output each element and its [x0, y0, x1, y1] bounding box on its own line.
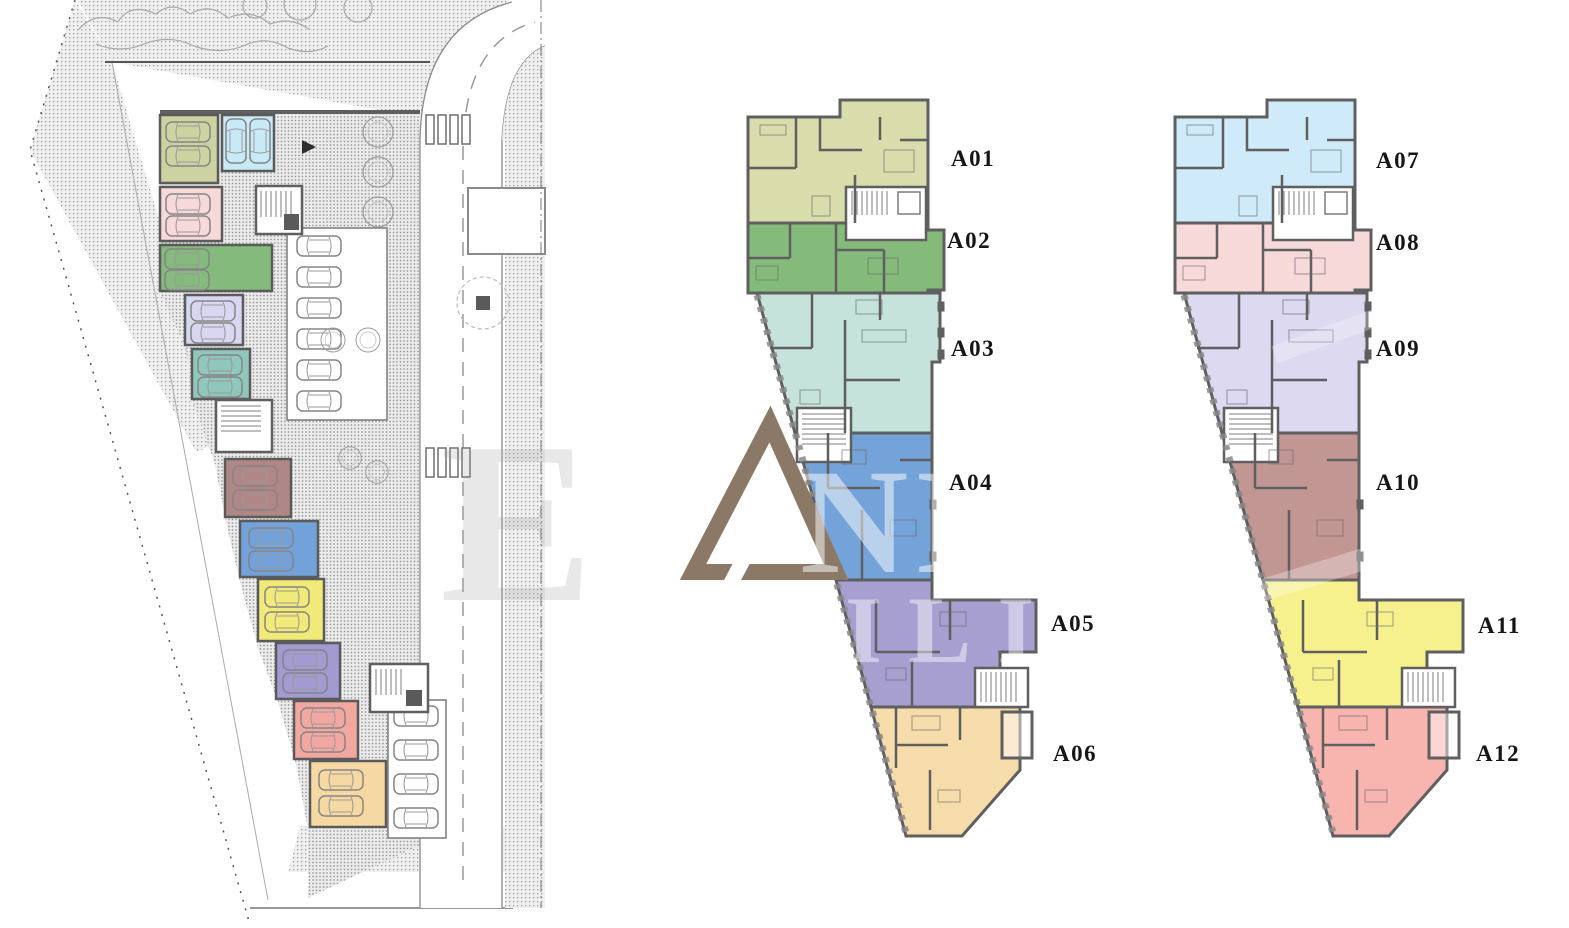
- floor-plans-page: E NNI ILI A01 A02 A03 A04 A05 A06 A07 A0…: [0, 0, 1569, 928]
- label-unit-a03: A03: [951, 336, 995, 362]
- label-unit-a07: A07: [1376, 148, 1420, 174]
- feature-marker: [476, 296, 490, 310]
- label-unit-a10: A10: [1376, 470, 1420, 496]
- plans-svg: E NNI ILI: [0, 0, 1569, 928]
- watermark-letters-bottom: ILI: [845, 577, 1060, 683]
- label-unit-a09: A09: [1376, 336, 1420, 362]
- unit-a12: [1298, 707, 1447, 836]
- label-unit-a08: A08: [1376, 230, 1420, 256]
- floor-plan-2: [1175, 100, 1463, 836]
- label-unit-a04: A04: [949, 470, 993, 496]
- label-unit-a02: A02: [947, 228, 991, 254]
- label-unit-a06: A06: [1053, 741, 1097, 767]
- east-plaza: [468, 188, 545, 254]
- unit-a06: [871, 707, 1020, 836]
- label-unit-a01: A01: [951, 146, 995, 172]
- label-unit-a05: A05: [1051, 611, 1095, 637]
- label-unit-a11: A11: [1478, 613, 1521, 639]
- watermark-ghost-letter: E: [440, 395, 593, 650]
- label-unit-a12: A12: [1476, 741, 1520, 767]
